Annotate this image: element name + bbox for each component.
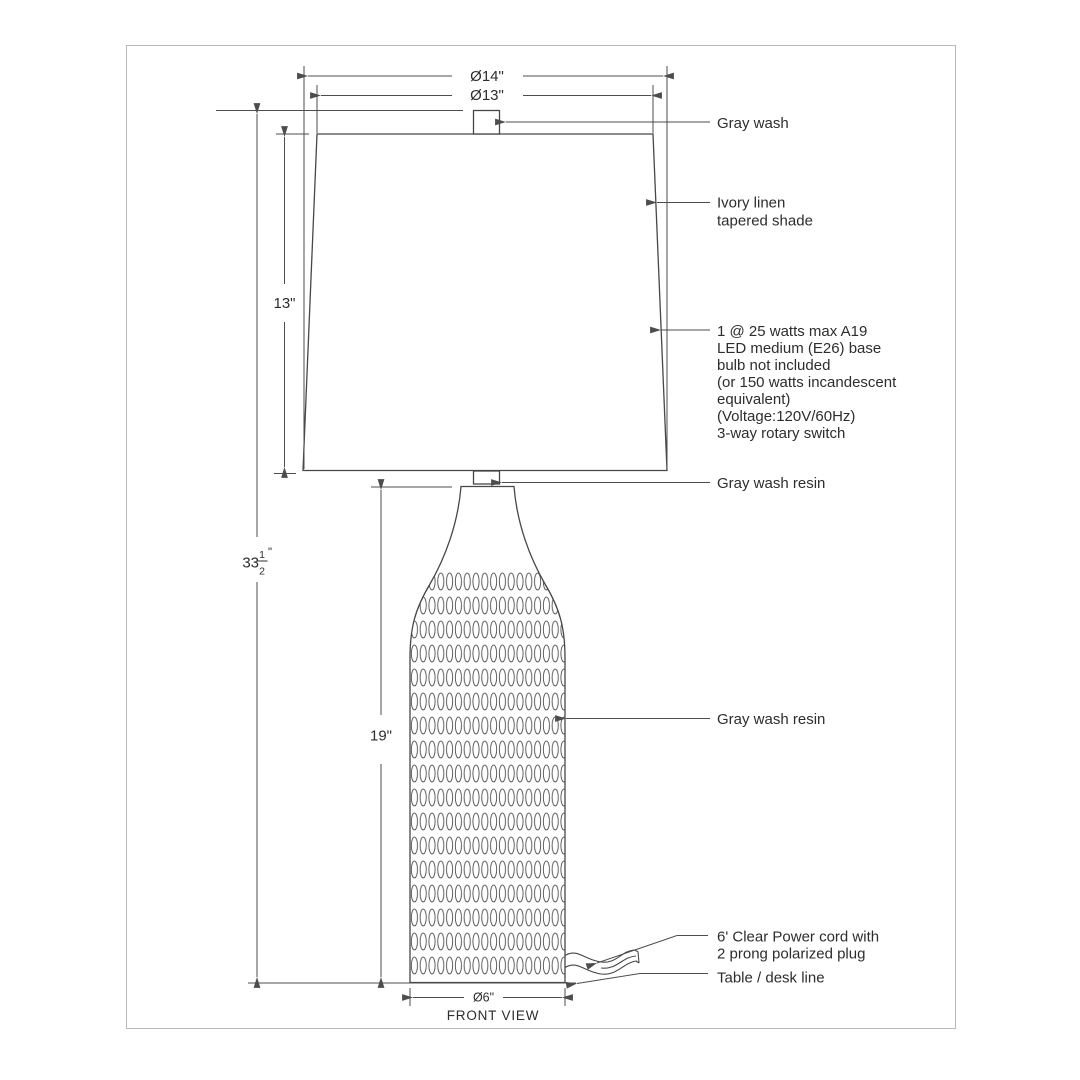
annotation-finial: Gray wash (717, 115, 789, 132)
annotation-bulb-line2: LED medium (E26) base (717, 340, 881, 357)
total-height-denominator: 2 (259, 566, 265, 578)
leader-table (577, 974, 708, 984)
annotation-cord-line1: 6' Clear Power cord with (717, 929, 879, 946)
annotation-shade: Ivory linen tapered shade (717, 195, 813, 230)
dim-label-dia13: Ø13" (470, 87, 504, 104)
lamp-finial (474, 111, 500, 135)
dim-label-dia14: Ø14" (470, 68, 504, 85)
technical-drawing-svg: Ø14" Ø13" 13" 33 1 2 " 19" Ø6" FRONT VIE… (0, 0, 1080, 1080)
dim-label-shade-height: 13" (273, 295, 295, 312)
annotation-shade-line1: Ivory linen (717, 195, 785, 212)
annotation-bulb-line1: 1 @ 25 watts max A19 (717, 323, 867, 340)
annotation-bulb: 1 @ 25 watts max A19 LED medium (E26) ba… (717, 323, 897, 442)
total-height-unit: " (268, 547, 272, 559)
lamp-neck (474, 471, 500, 484)
annotation-body-resin: Gray wash resin (717, 711, 825, 728)
annotation-bulb-line6: (Voltage:120V/60Hz) (717, 408, 855, 425)
annotation-bulb-line5: equivalent) (717, 391, 790, 408)
dim-label-total-height: 33 1 2 " (242, 547, 272, 578)
annotation-table: Table / desk line (717, 970, 825, 987)
power-cord (565, 950, 639, 974)
view-label: FRONT VIEW (447, 1008, 540, 1023)
lamp-shade (303, 134, 667, 471)
annotation-neck-resin: Gray wash resin (717, 475, 825, 492)
annotation-bulb-line4: (or 150 watts incandescent (717, 374, 897, 391)
total-height-numerator: 1 (259, 549, 265, 561)
leader-cord (597, 936, 708, 964)
dim-label-body-height: 19" (370, 728, 392, 745)
annotation-bulb-line3: bulb not included (717, 357, 830, 374)
annotation-bulb-line7: 3-way rotary switch (717, 425, 845, 442)
annotation-cord: 6' Clear Power cord with 2 prong polariz… (717, 929, 879, 963)
lamp-body-texture (406, 570, 570, 979)
lamp-dimension-drawing: Ø14" Ø13" 13" 33 1 2 " 19" Ø6" FRONT VIE… (0, 0, 1080, 1080)
dim-label-base-dia: Ø6" (473, 991, 494, 1005)
annotation-shade-line2: tapered shade (717, 213, 813, 230)
annotation-cord-line2: 2 prong polarized plug (717, 946, 865, 963)
total-height-whole: 33 (242, 555, 259, 572)
